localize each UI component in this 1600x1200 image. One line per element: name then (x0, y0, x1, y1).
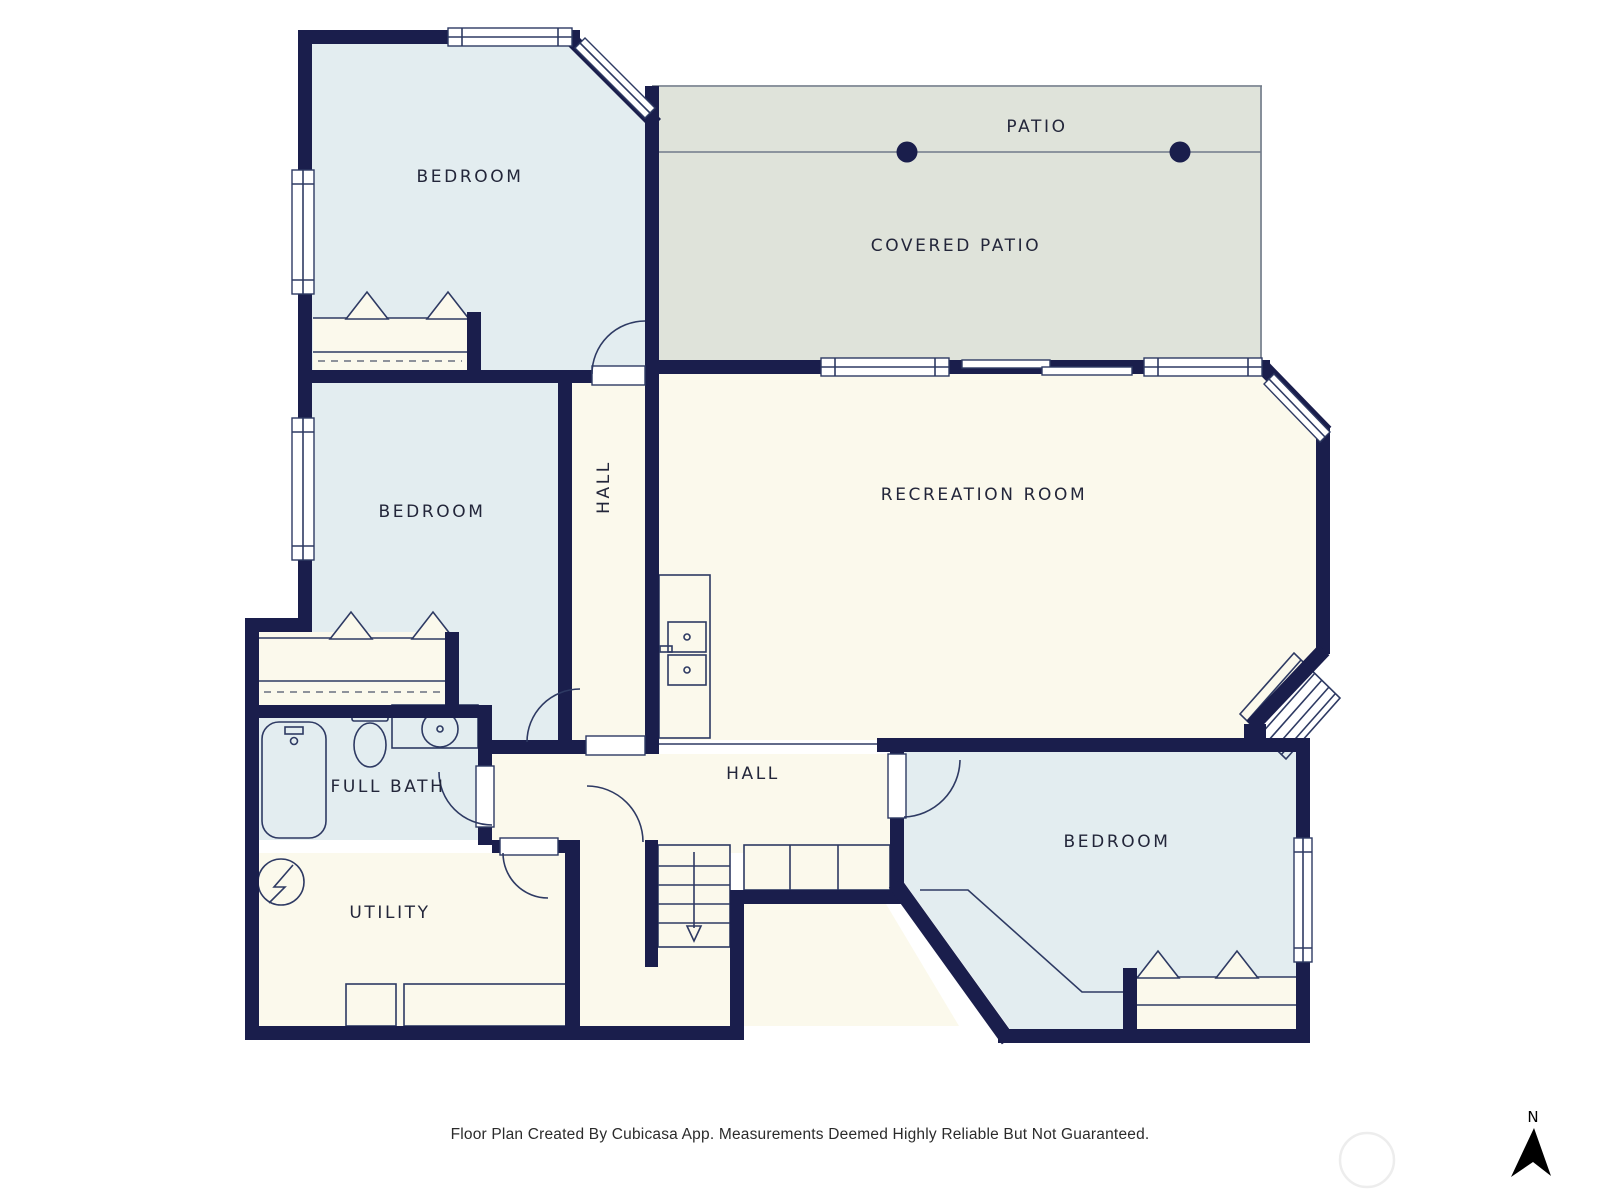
door-opening (500, 838, 558, 855)
closet-lower-right (1125, 977, 1296, 1029)
closet-middle (259, 632, 445, 705)
recreation-room-floor (659, 374, 1324, 740)
window (1144, 358, 1262, 376)
window (292, 170, 314, 294)
room-label-full-bath: FULL BATH (330, 777, 445, 797)
window (292, 418, 314, 560)
footer-disclaimer: Floor Plan Created By Cubicasa App. Meas… (0, 1126, 1600, 1144)
room-label-bedroom-top-left: BEDROOM (417, 167, 524, 187)
window (448, 28, 572, 46)
floor-plan-drawing (0, 0, 1600, 1200)
closet-top-left (313, 318, 467, 370)
room-label-utility: UTILITY (349, 903, 430, 923)
room-label-bedroom-middle: BEDROOM (379, 502, 486, 522)
patio-floor (652, 85, 1262, 362)
door-opening (586, 736, 645, 755)
room-label-recreation-room: RECREATION ROOM (881, 485, 1087, 505)
room-label-hall-lower: HALL (726, 764, 780, 784)
hall-upper-floor (572, 383, 645, 754)
patio-post (897, 142, 918, 163)
patio-post (1170, 142, 1191, 163)
door-opening (476, 766, 494, 827)
window (1294, 838, 1312, 962)
room-label-patio: PATIO (1006, 117, 1067, 137)
north-label: N (1527, 1108, 1538, 1126)
door-opening (592, 366, 645, 385)
window (821, 358, 949, 376)
room-label-bedroom-lower-right: BEDROOM (1064, 832, 1171, 852)
door-opening (888, 754, 906, 818)
floor-plan-page: BEDROOM PATIO COVERED PATIO BEDROOM HALL… (0, 0, 1600, 1200)
room-label-hall-upper: HALL (594, 460, 614, 514)
utility-floor (259, 853, 565, 1026)
room-fills (259, 44, 1324, 1029)
room-label-covered-patio: COVERED PATIO (871, 236, 1041, 256)
